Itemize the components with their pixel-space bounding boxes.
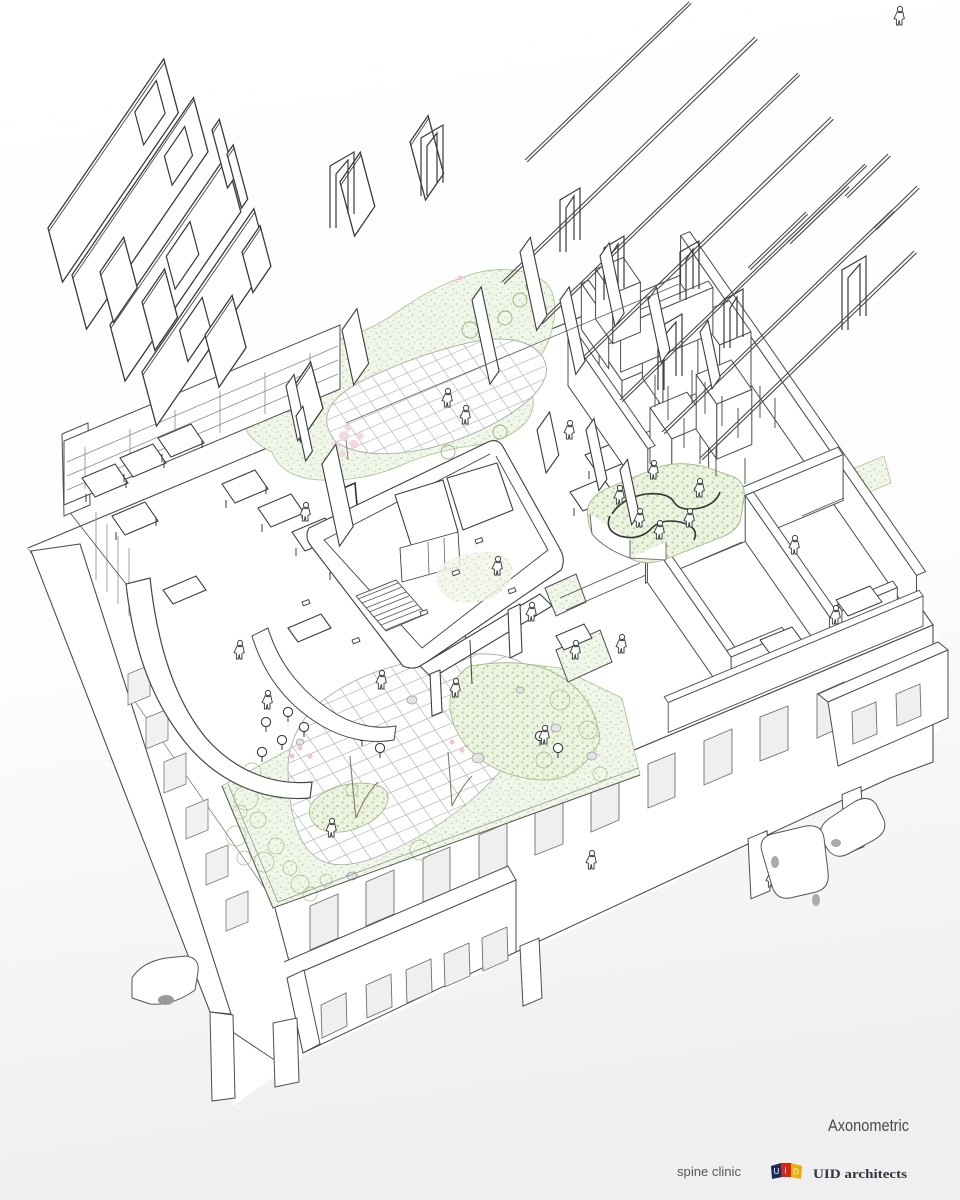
svg-text:Axonometric: Axonometric [828,1116,909,1135]
svg-text:U: U [774,1167,780,1176]
svg-text:I: I [785,1167,787,1176]
svg-text:D: D [793,1168,799,1177]
svg-text:spine clinic: spine clinic [677,1164,741,1179]
svg-text:UID architects: UID architects [813,1167,907,1181]
